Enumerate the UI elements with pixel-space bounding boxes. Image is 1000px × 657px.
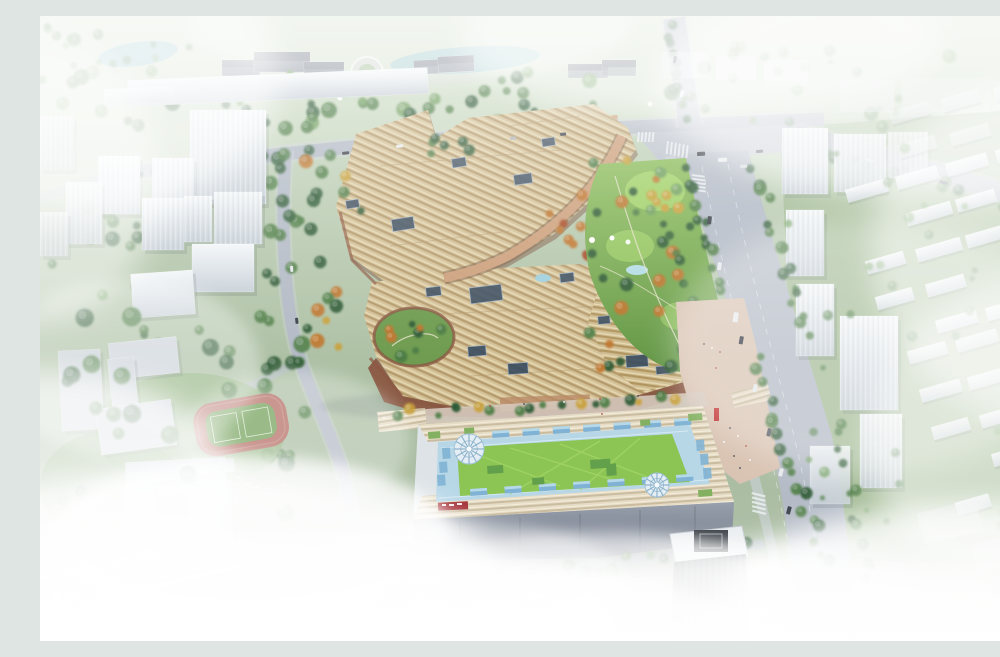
aerial-architectural-render: Aerial architectural rendering: golden t… — [40, 16, 1000, 641]
atmospheric-haze — [40, 16, 1000, 641]
render-canvas — [40, 16, 1000, 641]
